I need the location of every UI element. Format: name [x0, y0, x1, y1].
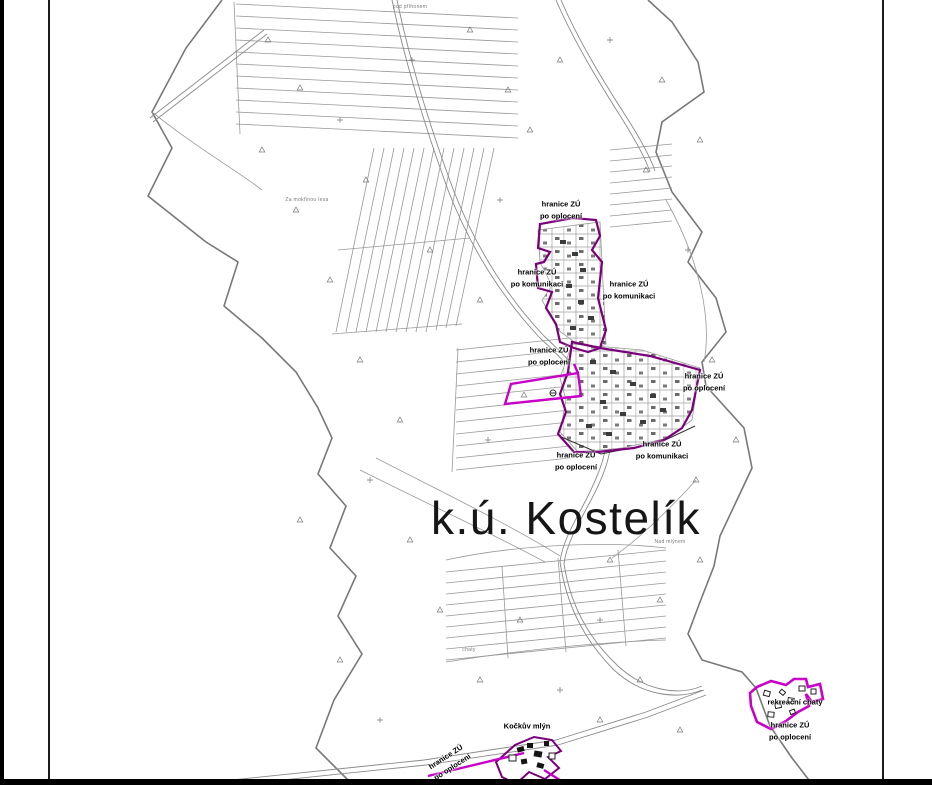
zu-boundary-label: hranice ZÚ po oplocení	[540, 198, 582, 221]
zu-boundary-label: hranice ZÚ po oplocení	[683, 370, 725, 393]
frame-inner-line	[48, 0, 50, 785]
mill-label: Kočkův mlýn	[504, 722, 551, 731]
zu-boundary-label: hranice ZÚ po komunikaci	[603, 278, 656, 301]
zu-boundary-label: hranice ZÚ po oplocení	[528, 344, 570, 367]
frame-bottom-bar	[0, 779, 932, 785]
parcel-lines	[152, 2, 706, 662]
zu-boundary-label: hranice ZÚ po oplocení	[555, 449, 597, 472]
village-blocks	[538, 222, 700, 452]
field-name-label: Za mokřinou lesa	[285, 197, 328, 203]
frame-right-line	[882, 0, 884, 785]
map-sheet: hranice ZÚ po oplocení hranice ZÚ po kom…	[0, 0, 932, 785]
cadastral-map-canvas	[0, 0, 932, 785]
feature-symbol	[550, 390, 557, 396]
zu-boundary-label: hranice ZÚ po komunikaci	[636, 438, 689, 461]
map-title: k.ú. Kostelík	[431, 491, 701, 545]
zu-boundary-label: hranice ZÚ po oplocení	[769, 719, 811, 742]
field-name-label: pod příhonem	[393, 4, 427, 10]
frame-left-bar	[0, 0, 4, 785]
field-name-label: chaty	[462, 647, 475, 653]
zu-boundary-label: hranice ZÚ po komunikaci	[511, 266, 564, 289]
cabins-label: rekreační chaty	[767, 698, 822, 707]
